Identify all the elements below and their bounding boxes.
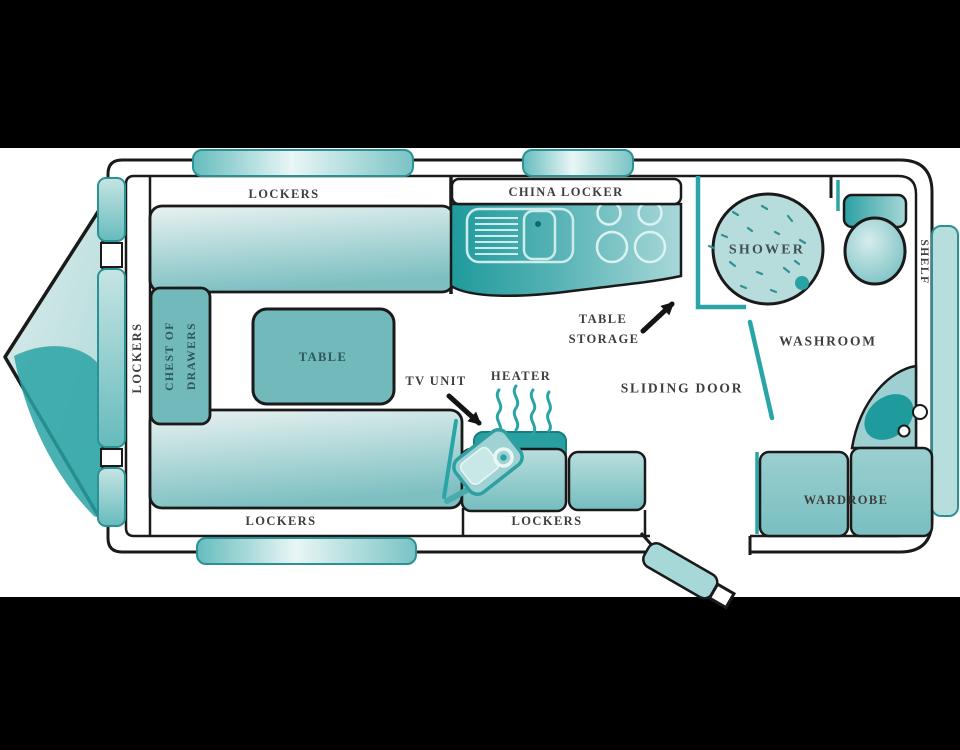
toilet-bowl bbox=[845, 218, 905, 284]
chest-of-drawers bbox=[151, 288, 210, 424]
label-tv-unit: TV UNIT bbox=[405, 374, 466, 388]
label-chest-line1: CHEST OF bbox=[164, 321, 176, 391]
label-chest-line2: DRAWERS bbox=[186, 322, 198, 390]
label-lockers-left: LOCKERS bbox=[130, 323, 144, 394]
label-wardrobe: WARDROBE bbox=[804, 493, 889, 507]
label-table-storage-line1: TABLE bbox=[579, 312, 627, 326]
seat-front bbox=[150, 206, 454, 292]
floor-plan-image: LOCKERS CHINA LOCKER LOCKERS CHEST OF DR… bbox=[0, 0, 960, 750]
front-corner-joint-top bbox=[101, 243, 122, 267]
front-wall-panel-bottom bbox=[98, 468, 125, 526]
label-table: TABLE bbox=[299, 350, 347, 364]
label-china-locker: CHINA LOCKER bbox=[508, 185, 623, 199]
label-shelf: SHELF bbox=[918, 239, 930, 284]
wardrobe-right-door bbox=[851, 448, 932, 536]
label-lockers-top: LOCKERS bbox=[249, 187, 320, 201]
label-table-storage-line2: STORAGE bbox=[569, 332, 640, 346]
front-wall-panel-top bbox=[98, 178, 125, 241]
window-front-left bbox=[193, 150, 413, 176]
sink-plug bbox=[535, 221, 541, 227]
shelf-panel bbox=[932, 226, 958, 516]
floor-plan-canvas: LOCKERS CHINA LOCKER LOCKERS CHEST OF DR… bbox=[0, 0, 960, 750]
front-corner-joint-bottom bbox=[101, 449, 122, 466]
shower-drain bbox=[795, 276, 809, 290]
label-lockers-bottom-left: LOCKERS bbox=[246, 514, 317, 528]
label-lockers-bottom-center: LOCKERS bbox=[512, 514, 583, 528]
label-washroom: WASHROOM bbox=[779, 334, 877, 349]
window-rear-left bbox=[197, 538, 416, 564]
label-shower: SHOWER bbox=[729, 243, 805, 258]
locker-bottom-center bbox=[569, 452, 645, 510]
label-heater: HEATER bbox=[491, 369, 551, 383]
label-sliding-door: SLIDING DOOR bbox=[621, 381, 744, 396]
basin-tap bbox=[899, 426, 910, 437]
front-wall-panel-middle bbox=[98, 269, 125, 447]
sink-drainer bbox=[475, 218, 518, 254]
basin-tap bbox=[913, 405, 927, 419]
window-kitchen bbox=[523, 150, 633, 176]
